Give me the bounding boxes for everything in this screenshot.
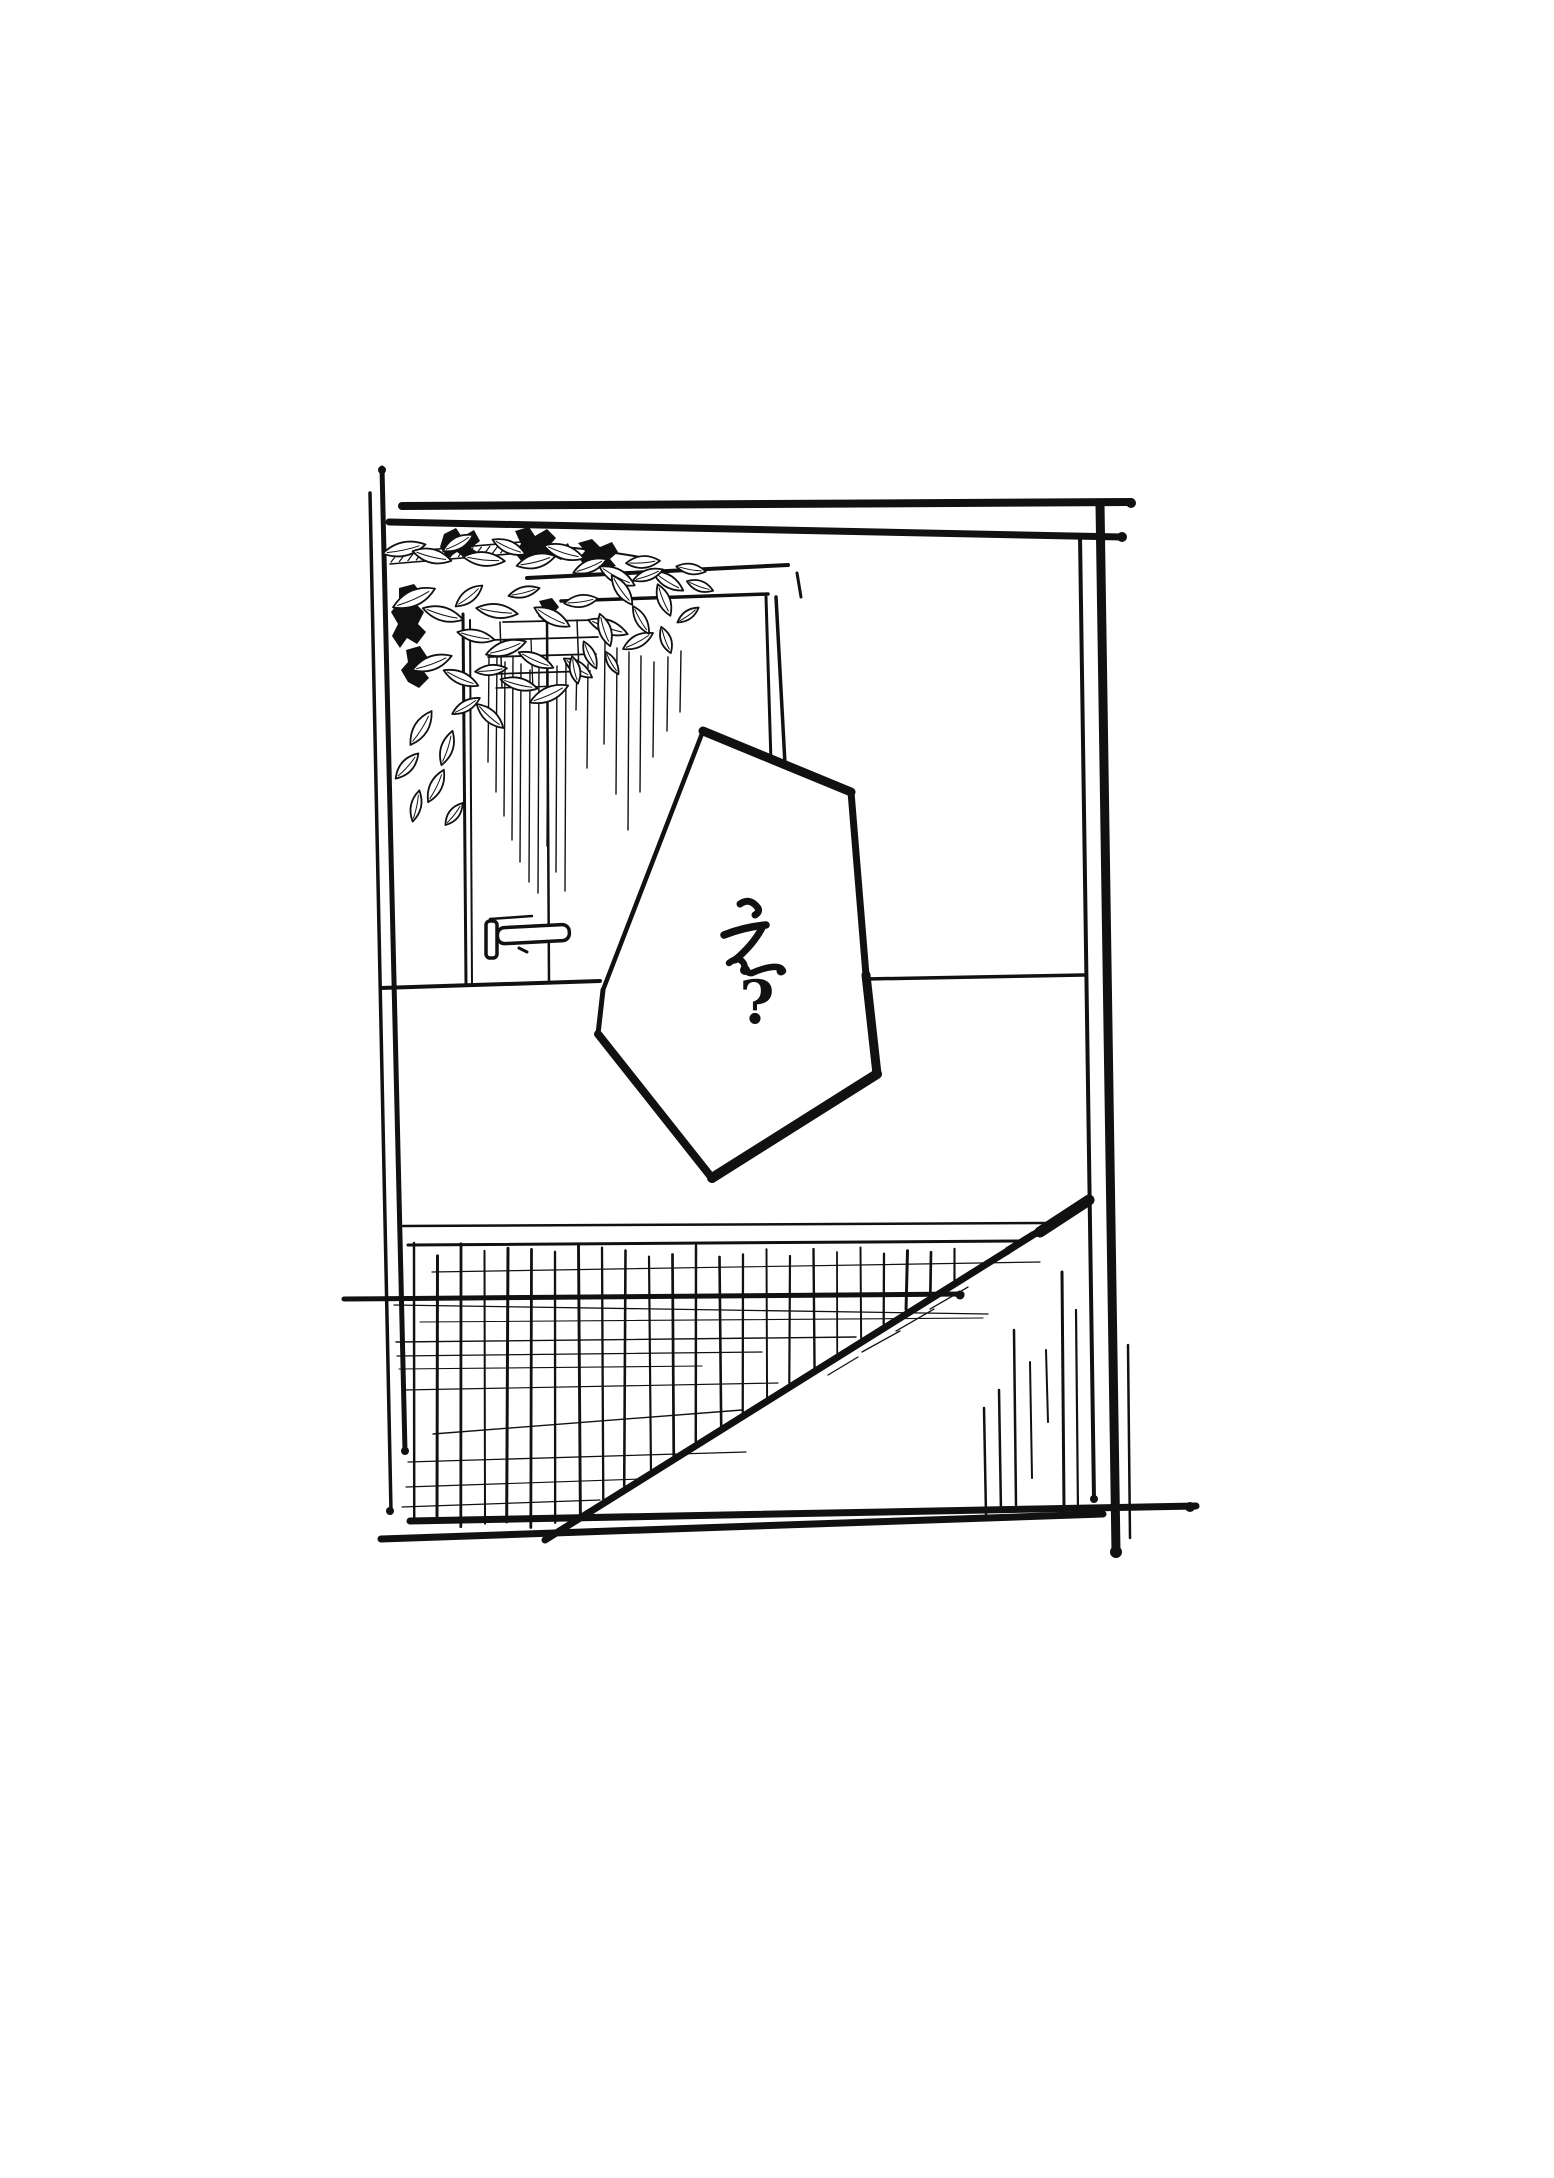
needle-stroke (1062, 1272, 1064, 1508)
border-ink-blob (378, 466, 386, 474)
wall-line (776, 597, 785, 764)
leaf-blade (391, 749, 423, 782)
hatch-vertical (507, 1248, 508, 1522)
leaf (436, 729, 458, 767)
leaf-blade (685, 576, 715, 595)
sketch-line (432, 1262, 1040, 1272)
question-mark-text: ? (739, 968, 774, 1038)
sketch-line (394, 1305, 988, 1314)
wall-line (381, 981, 600, 988)
hatch-vertical (437, 1256, 438, 1518)
leaf-blade (527, 679, 571, 709)
streak-line (653, 662, 654, 757)
hatch-vertical (767, 1249, 768, 1397)
leaf-blade (441, 665, 481, 691)
handle-lever (497, 924, 570, 944)
leaf (685, 576, 715, 595)
streak-line (628, 652, 629, 830)
leaf-blade (626, 555, 661, 569)
hatch-vertical (861, 1248, 862, 1339)
hatch-vertical (485, 1251, 486, 1524)
leaf-blade (629, 604, 654, 637)
border-ink-blob (1185, 1502, 1195, 1512)
leaf-blade (408, 789, 425, 822)
leaf-blade (436, 729, 458, 767)
border-ink-blob (386, 1507, 394, 1515)
leaf-blade (675, 604, 701, 626)
leaf (473, 700, 508, 733)
leaf (563, 593, 598, 610)
floor-line (408, 1241, 1020, 1245)
border-line (1080, 536, 1094, 1499)
border-line (402, 502, 1131, 506)
leaf-blade (423, 767, 449, 805)
needle-stroke (1014, 1330, 1016, 1505)
leaf (441, 665, 481, 691)
shelf-slat (490, 637, 598, 640)
needle-stroke (1046, 1350, 1048, 1422)
floor-line (403, 1223, 1046, 1226)
leaf-blade (507, 583, 541, 601)
handle-hook (519, 948, 527, 952)
wall-line (470, 620, 472, 985)
hatch-vertical (649, 1257, 651, 1471)
wall-line (797, 573, 801, 597)
leaf (391, 749, 423, 782)
needle-stroke (1076, 1310, 1078, 1512)
wall-line (866, 975, 1084, 979)
leaf-blade (441, 800, 466, 828)
leaf-blade (473, 700, 508, 733)
e-kana-glyph-knot (777, 967, 786, 976)
leaf (475, 663, 508, 676)
leaf (675, 604, 701, 626)
wall-line (766, 597, 771, 762)
streak-line (640, 656, 641, 792)
leaf-blade (563, 593, 598, 610)
leaf-blade (675, 561, 706, 576)
needle-stroke (999, 1390, 1001, 1512)
hatch-vertical (720, 1257, 722, 1427)
border-ink-blob (1110, 1546, 1122, 1558)
leaf-blade (405, 707, 438, 748)
leaf (516, 647, 556, 673)
leaf (507, 583, 541, 601)
leaf-blade (516, 647, 556, 673)
hatch-vertical (930, 1252, 931, 1294)
streak-line (667, 657, 668, 731)
wall-line (463, 614, 466, 984)
leaf (626, 555, 661, 569)
handle-backplate (486, 921, 497, 958)
leaf (408, 789, 425, 822)
leaf-blade (475, 663, 508, 676)
sketch-line (408, 1452, 746, 1462)
border-ink-blob (1117, 532, 1127, 542)
leaf (629, 604, 654, 637)
hatch-vertical (579, 1245, 581, 1515)
manga-panel-drawing: ? (0, 0, 1554, 2174)
handle-top-line (490, 916, 532, 919)
needle-stroke (984, 1408, 986, 1515)
hatch-vertical (906, 1251, 907, 1310)
hatch-vertical (673, 1254, 674, 1456)
border-line (1100, 504, 1116, 1552)
streak-line (520, 664, 521, 862)
border-line (389, 522, 1122, 537)
sketch-line (402, 1500, 600, 1507)
border-ink-blob (1090, 1495, 1098, 1503)
hatch-vertical (602, 1248, 603, 1501)
sketch-line (406, 1479, 642, 1487)
leaf (423, 767, 449, 805)
streak-line (680, 651, 681, 712)
floor-crosshatch (344, 1200, 1130, 1540)
leaf (656, 625, 675, 655)
leaf (405, 707, 438, 748)
needle-stroke (1030, 1362, 1032, 1478)
door-handle (486, 916, 570, 958)
leaf-blade (475, 601, 518, 620)
streak-line (504, 662, 505, 816)
floor-diagonal-thick-end (1040, 1200, 1089, 1232)
border-ink-blob (1126, 498, 1136, 508)
leaf-blade (656, 625, 675, 655)
streak-line (565, 662, 566, 891)
leaf (675, 561, 706, 576)
manga-page: ? (0, 0, 1554, 2174)
sketch-line (399, 1366, 702, 1369)
hatch-vertical (624, 1251, 625, 1486)
leaf (527, 679, 571, 709)
leaf (441, 800, 466, 828)
streak-line (587, 664, 588, 768)
leaf (475, 601, 518, 620)
border-ink-blob (401, 1447, 409, 1455)
hatch-vertical (531, 1249, 532, 1527)
hatch-vertical (814, 1249, 815, 1368)
